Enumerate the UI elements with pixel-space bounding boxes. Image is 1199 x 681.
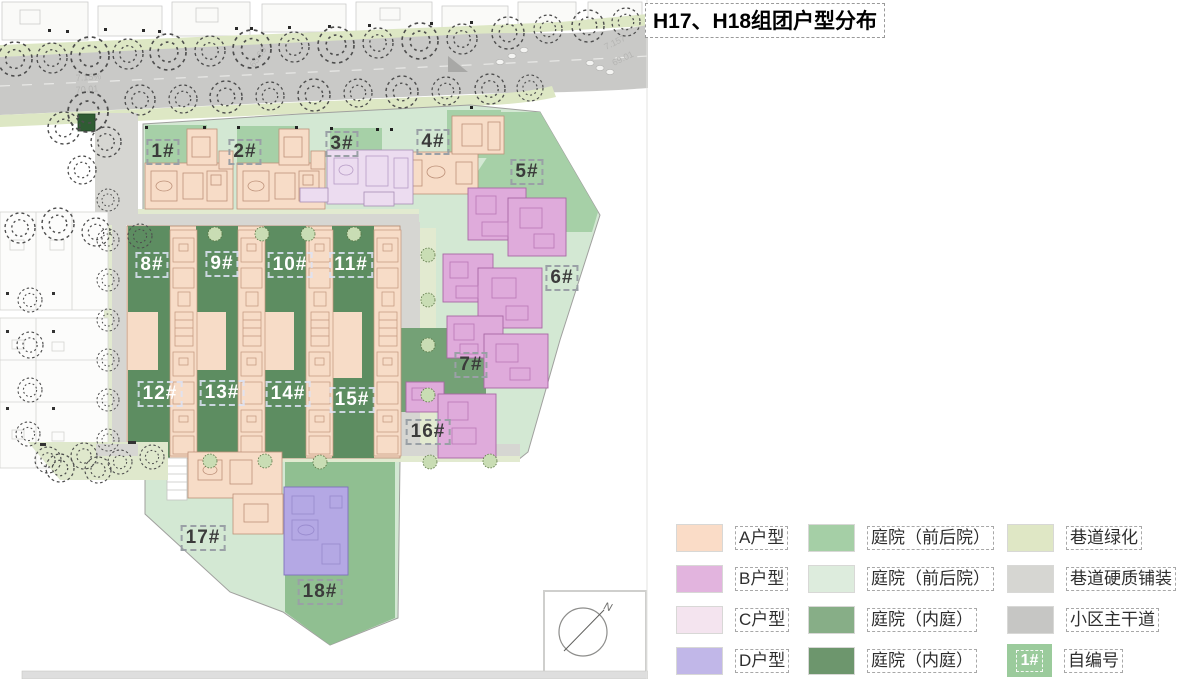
building-label-5: 5# [510,159,543,185]
building-label-9: 9# [205,251,238,277]
legend-label: 庭院（内庭） [867,649,977,673]
legend-number-chip: 1# [1007,644,1052,677]
legend-label: 庭院（前后院） [867,526,994,550]
legend-swatch-lane-green [1007,524,1054,552]
building-label-1: 1# [146,139,179,165]
site-plan: 7.15% 70.01 65.60 7.157 69.01 [0,0,648,679]
building-label-2: 2# [228,139,261,165]
entry-plaza [95,113,138,225]
legend-swatch-courtyard-4 [808,647,855,675]
legend-column-courtyards: 庭院（前后院） 庭院（前后院） 庭院（内庭） 庭院（内庭） [808,517,994,681]
legend-label: A户型 [735,526,788,550]
legend-swatch-courtyard-1 [808,524,855,552]
legend-item: 巷道硬质铺装 [1007,558,1176,599]
legend-swatch-courtyard-2 [808,565,855,593]
page-title: H17、H18组团户型分布 [645,3,885,38]
alley-strip [127,209,419,214]
legend-column-unit-types: A户型 B户型 C户型 D户型 [676,517,789,681]
legend-item: 巷道绿化 [1007,517,1176,558]
legend-item: A户型 [676,517,789,558]
legend-label: 庭院（内庭） [867,608,977,632]
building-label-11: 11# [329,252,373,278]
legend-item: 庭院（内庭） [808,599,994,640]
legend-item: 庭院（前后院） [808,517,994,558]
building-label-15: 15# [330,387,375,413]
legend-label: 小区主干道 [1066,608,1159,632]
legend-swatch-main-road [1007,606,1054,634]
building-label-14: 14# [266,381,311,407]
legend-swatch-courtyard-3 [808,606,855,634]
legend-label: D户型 [735,649,789,673]
building-label-3: 3# [325,131,358,157]
building-18-d-type [284,487,348,575]
building-label-8: 8# [135,252,168,278]
legend-item: B户型 [676,558,789,599]
site-plan-drawing: 7.15% 70.01 65.60 7.157 69.01 [0,0,648,679]
legend-label: 自编号 [1064,649,1123,673]
legend-item: D户型 [676,640,789,681]
legend-number-chip-text: 1# [1016,650,1044,672]
legend-label: B户型 [735,567,788,591]
legend-item: 庭院（内庭） [808,640,994,681]
road-label: 7.15% [75,71,101,83]
legend-item: C户型 [676,599,789,640]
north-arrow: N [544,591,646,677]
bottom-road-strip [22,671,648,679]
building-label-18: 18# [298,579,343,605]
building-label-16: 16# [406,419,451,445]
legend-label: 巷道硬质铺装 [1066,567,1176,591]
legend-item: 1# 自编号 [1007,640,1176,681]
building-label-4: 4# [416,129,449,155]
legend-item: 庭院（前后院） [808,558,994,599]
legend-label: C户型 [735,608,789,632]
legend-swatch-a [676,524,723,552]
building-label-13: 13# [200,380,245,406]
legend-label: 巷道绿化 [1066,526,1142,550]
page: { "title": "H17、H18组团户型分布", "plan": { "b… [0,0,1199,679]
legend-item: 小区主干道 [1007,599,1176,640]
legend-swatch-lane-paving [1007,565,1054,593]
road-label: 70.01 [75,83,98,95]
legend-label: 庭院（前后院） [867,567,994,591]
legend-swatch-d [676,647,723,675]
legend-swatch-c [676,606,723,634]
building-label-6: 6# [545,265,578,291]
building-label-12: 12# [138,381,183,407]
building-label-17: 17# [181,525,226,551]
building-label-10: 10# [268,252,313,278]
context-buildings-west [0,212,108,468]
legend-swatch-b [676,565,723,593]
legend-column-roads: 巷道绿化 巷道硬质铺装 小区主干道 1# 自编号 [1007,517,1176,681]
building-label-7: 7# [454,352,487,378]
